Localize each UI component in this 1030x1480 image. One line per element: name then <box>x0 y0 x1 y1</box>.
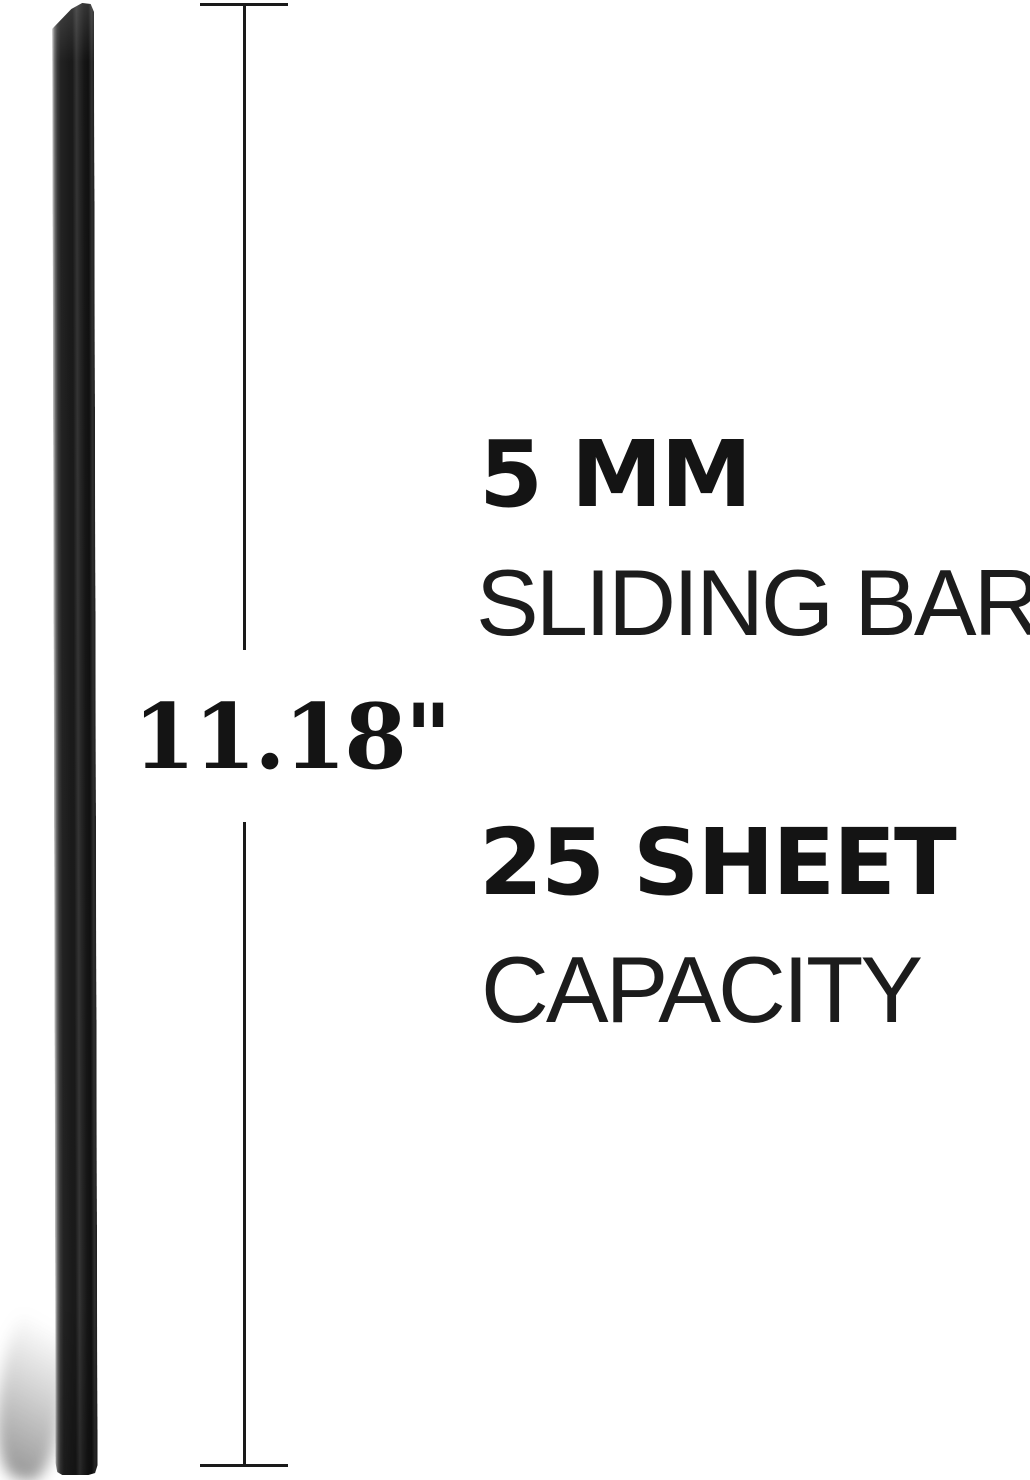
spec-capacity: CAPACITY <box>481 943 920 1037</box>
dimension-line-lower <box>243 822 246 1466</box>
spec-sheet-count: 25 SHEET <box>479 817 955 909</box>
sliding-bar-product <box>52 3 98 1475</box>
dimension-tick-bottom <box>200 1464 288 1467</box>
spec-bar-type: SLIDING BAR <box>476 556 1030 650</box>
product-image-canvas: 11.18" 5 MM SLIDING BAR 25 SHEET CAPACIT… <box>0 0 1030 1480</box>
length-measurement-label: 11.18" <box>133 692 450 782</box>
spec-bar-thickness: 5 MM <box>479 429 750 521</box>
dimension-line-upper <box>243 4 246 650</box>
